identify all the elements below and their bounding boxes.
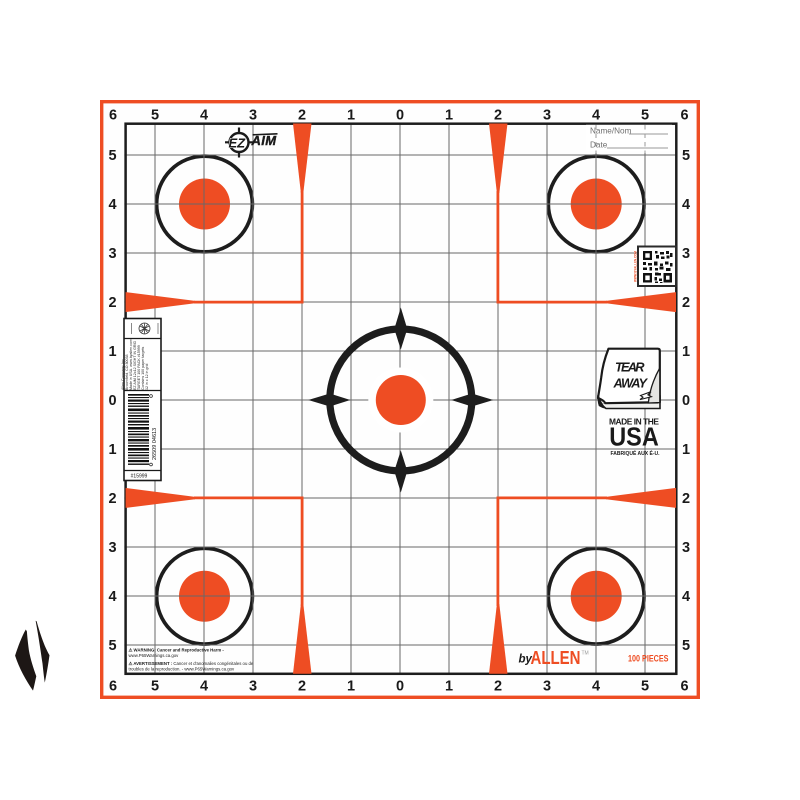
svg-text:3: 3 xyxy=(543,679,551,695)
svg-text:0: 0 xyxy=(396,679,404,695)
svg-text:4: 4 xyxy=(592,108,600,124)
svg-text:3: 3 xyxy=(249,108,257,124)
svg-text:5: 5 xyxy=(151,108,159,124)
svg-text:2: 2 xyxy=(298,108,306,124)
svg-text:2: 2 xyxy=(108,491,116,507)
svg-text:0: 0 xyxy=(108,393,116,409)
svg-text:1: 1 xyxy=(347,108,355,124)
svg-text:6: 6 xyxy=(680,108,688,124)
svg-text:3: 3 xyxy=(108,540,116,556)
svg-text:1: 1 xyxy=(347,679,355,695)
svg-text:⚠ AVERTISSEMENT : Cancer et d': ⚠ AVERTISSEMENT : Cancer et d'anomalies … xyxy=(129,661,254,666)
svg-text:0: 0 xyxy=(682,393,690,409)
svg-text:EZ: EZ xyxy=(229,136,247,151)
svg-text:1: 1 xyxy=(445,108,453,124)
svg-text:USA: USA xyxy=(609,424,659,452)
svg-text:Date: Date xyxy=(590,141,608,150)
svg-text:3: 3 xyxy=(682,540,690,556)
svg-text:2: 2 xyxy=(494,679,502,695)
svg-text:2: 2 xyxy=(108,295,116,311)
svg-text:1: 1 xyxy=(445,679,453,695)
svg-text:ALLEN: ALLEN xyxy=(531,648,581,668)
svg-text:5: 5 xyxy=(641,108,649,124)
svg-text:3: 3 xyxy=(108,246,116,262)
svg-text:2: 2 xyxy=(682,491,690,507)
svg-text:www.P65Warnings.ca.gov: www.P65Warnings.ca.gov xyxy=(129,653,180,658)
svg-text:6: 6 xyxy=(109,108,117,124)
svg-text:4: 4 xyxy=(682,589,690,605)
svg-text:⚠ WARNING: Cancer and Reproduc: ⚠ WARNING: Cancer and Reproductive Harm … xyxy=(129,648,225,653)
svg-text:5: 5 xyxy=(108,638,116,654)
svg-text:1: 1 xyxy=(682,344,690,360)
svg-text:2: 2 xyxy=(494,108,502,124)
svg-text:5: 5 xyxy=(682,148,690,164)
svg-text:1: 1 xyxy=(108,344,116,360)
svg-text:4: 4 xyxy=(108,589,116,605)
svg-text:2: 2 xyxy=(682,295,690,311)
svg-text:5: 5 xyxy=(108,148,116,164)
svg-text:1: 1 xyxy=(682,442,690,458)
svg-text:4: 4 xyxy=(108,197,116,213)
svg-text:4: 4 xyxy=(592,679,600,695)
svg-text:4: 4 xyxy=(200,108,208,124)
svg-text:troubles de la reproduction. -: troubles de la reproduction. - www.P65Wa… xyxy=(129,667,235,672)
svg-text:5: 5 xyxy=(151,679,159,695)
svg-text:26509 04613: 26509 04613 xyxy=(152,428,158,460)
svg-text:#15999: #15999 xyxy=(131,474,148,480)
svg-text:5: 5 xyxy=(641,679,649,695)
svg-text:100 PIECES: 100 PIECES xyxy=(628,654,669,664)
svg-text:3: 3 xyxy=(682,246,690,262)
svg-text:0: 0 xyxy=(396,108,404,124)
svg-text:3: 3 xyxy=(249,679,257,695)
svg-text:2: 2 xyxy=(298,679,306,695)
svg-text:4: 4 xyxy=(682,197,690,213)
svg-text:TEAR: TEAR xyxy=(615,360,645,375)
svg-text:AWAY: AWAY xyxy=(613,376,649,391)
svg-text:1: 1 xyxy=(108,442,116,458)
svg-text:5: 5 xyxy=(682,638,690,654)
svg-text:6: 6 xyxy=(109,679,117,695)
svg-text:6: 6 xyxy=(680,679,688,695)
svg-text:12 in x 12 in grid: 12 in x 12 in grid xyxy=(145,364,149,390)
svg-text:TM: TM xyxy=(582,651,589,657)
svg-text:4: 4 xyxy=(200,679,208,695)
svg-text:FABRIQUÉ AUX É-U.: FABRIQUÉ AUX É-U. xyxy=(611,449,660,457)
svg-text:WWW.BYALLEN.COM: WWW.BYALLEN.COM xyxy=(633,251,638,282)
svg-text:3: 3 xyxy=(543,108,551,124)
